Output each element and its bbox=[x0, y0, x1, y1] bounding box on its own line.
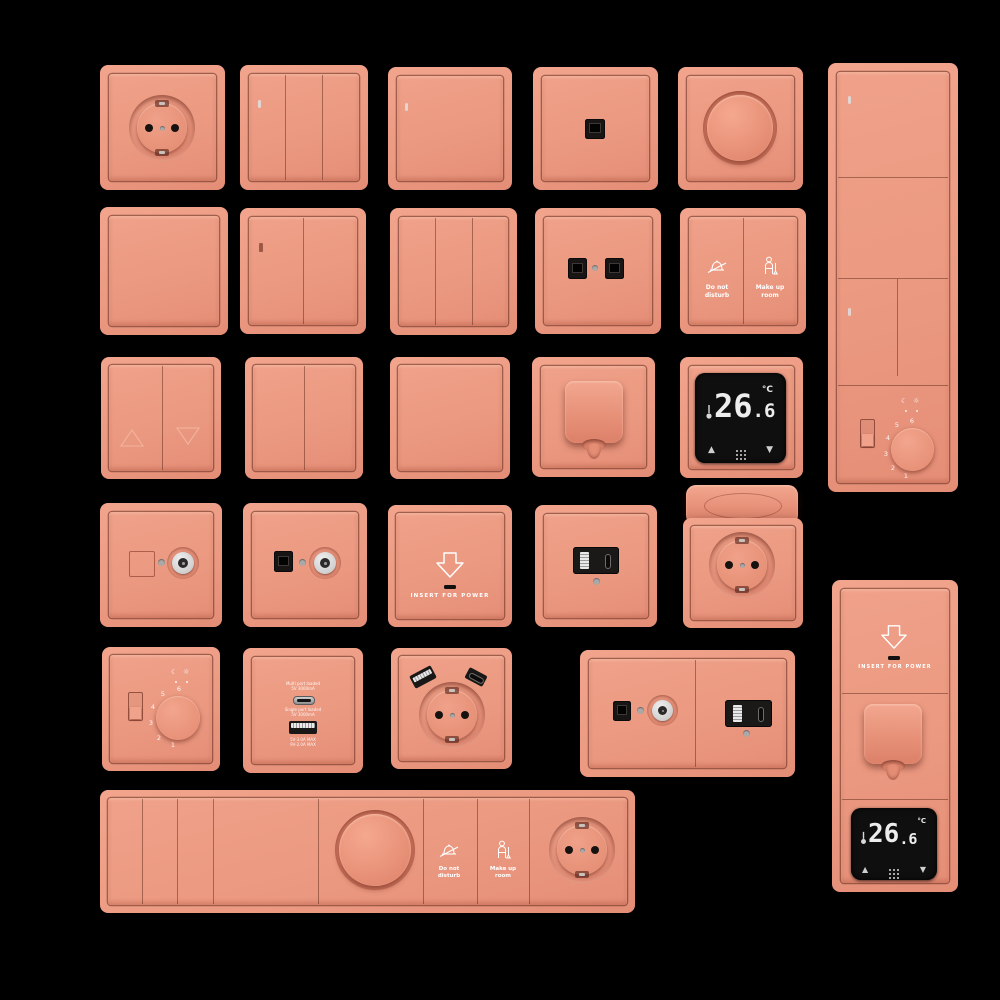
status-dot bbox=[743, 730, 750, 737]
two-gang-switch-plate-2 bbox=[245, 357, 363, 479]
socket-pin-hole-left[interactable] bbox=[145, 124, 153, 132]
earth-clip-top bbox=[575, 822, 589, 829]
led-indicator bbox=[848, 308, 851, 316]
data-tv-outlet-plate bbox=[243, 503, 367, 627]
status-dot bbox=[637, 707, 644, 714]
temp-fraction: .6 bbox=[899, 831, 917, 848]
data-port-left[interactable] bbox=[568, 258, 587, 279]
rocker-area[interactable] bbox=[109, 216, 219, 326]
gang-divider bbox=[162, 366, 163, 470]
usb-c-slot bbox=[297, 699, 311, 702]
temp-up-button[interactable]: ▲ bbox=[708, 445, 715, 455]
dial-number: 5 bbox=[892, 421, 902, 429]
socket-pin-hole-right[interactable] bbox=[171, 124, 179, 132]
clip-metal bbox=[449, 689, 455, 692]
usb-c-port[interactable] bbox=[293, 696, 315, 705]
make-up-room-icon bbox=[759, 255, 781, 278]
outlet-cover-flap[interactable] bbox=[565, 381, 623, 443]
socket-pin-hole-left[interactable] bbox=[565, 846, 573, 854]
dimmer-plate bbox=[678, 67, 803, 190]
clip-metal bbox=[159, 151, 165, 154]
dial-number: 3 bbox=[146, 719, 156, 727]
rocker-area[interactable] bbox=[397, 76, 503, 181]
three-gang-switch-plate bbox=[240, 65, 368, 190]
thermometer-icon bbox=[705, 403, 713, 421]
unit-label: °C bbox=[917, 817, 926, 825]
status-dot bbox=[592, 265, 598, 271]
data-port[interactable] bbox=[613, 701, 631, 721]
blank-module-outline bbox=[129, 551, 155, 577]
usb-charger-text-plate: Multi port loaded 5V 3000mA Single port … bbox=[243, 648, 363, 773]
earth-clip-top bbox=[155, 100, 169, 107]
one-gang-switch-plate bbox=[388, 67, 512, 190]
make-up-room-label: Make up room bbox=[746, 284, 794, 299]
dial-number: 1 bbox=[901, 472, 911, 480]
rocker-area[interactable] bbox=[399, 217, 508, 326]
coax-pin bbox=[324, 562, 327, 565]
module-divider bbox=[695, 660, 696, 767]
temp-down-button[interactable]: ▼ bbox=[766, 445, 773, 455]
coax-pin bbox=[662, 710, 665, 713]
temp-fraction: .6 bbox=[753, 401, 776, 422]
rocker-area[interactable] bbox=[109, 365, 213, 471]
section-divider bbox=[838, 177, 948, 178]
dnd-mur-switch-plate: Do not disturb Make up room bbox=[680, 208, 806, 334]
usb-charger-module bbox=[573, 547, 619, 574]
usb-c-port[interactable] bbox=[605, 554, 611, 569]
moon-icon: ☾ bbox=[901, 397, 907, 405]
clip-metal bbox=[449, 738, 455, 741]
dimmer-knob[interactable] bbox=[339, 814, 411, 886]
schuko-socket-plate bbox=[100, 65, 225, 190]
blinds-switch-plate bbox=[101, 357, 221, 479]
gang-divider bbox=[897, 279, 898, 376]
double-data-outlet-plate bbox=[535, 208, 661, 334]
tall-combo-plate-1: ☾ ☼ 6 5 4 3 2 1 bbox=[828, 63, 958, 492]
analog-thermostat-plate: ☾ ☼ 6 5 4 3 2 1 bbox=[102, 647, 220, 771]
gang-divider bbox=[477, 799, 478, 904]
socket-pin-hole-right[interactable] bbox=[461, 711, 469, 719]
full-rocker-switch-plate bbox=[390, 357, 510, 479]
socket-pin-hole-right[interactable] bbox=[751, 561, 759, 569]
key-card-holder-plate: INSERT FOR POWER bbox=[388, 505, 512, 627]
gang-divider bbox=[303, 218, 304, 324]
section-divider bbox=[842, 693, 948, 694]
tv-outlet-plate bbox=[100, 503, 222, 627]
socket-pin-hole-right[interactable] bbox=[591, 846, 599, 854]
clip-metal bbox=[159, 102, 165, 105]
status-dot bbox=[158, 559, 165, 566]
output-rating-label: 5V-3.0A MAX 9V-2.0A MAX bbox=[268, 737, 338, 747]
double-module-plate bbox=[580, 650, 795, 777]
moon-icon: ☾ bbox=[171, 668, 177, 676]
dimmer-knob[interactable] bbox=[707, 95, 773, 161]
section-divider bbox=[838, 278, 948, 279]
data-port[interactable] bbox=[585, 119, 605, 139]
usb-c-rating-label: Multi port loaded 5V 3000mA bbox=[268, 681, 338, 691]
gang-divider bbox=[472, 218, 473, 325]
temp-integer: 26 bbox=[868, 821, 899, 847]
socket-center-dot bbox=[450, 713, 455, 718]
data-port-opening bbox=[278, 556, 289, 567]
indicator-dot bbox=[175, 681, 177, 683]
earth-clip-top bbox=[445, 687, 459, 694]
thermostat-toggle[interactable] bbox=[128, 692, 143, 721]
data-port-opening bbox=[572, 263, 583, 274]
thermometer-icon bbox=[860, 830, 867, 846]
indicator-dot bbox=[186, 681, 188, 683]
lidded-socket-plate bbox=[683, 518, 803, 628]
toggle-knob[interactable] bbox=[130, 707, 141, 719]
outlet-face bbox=[252, 512, 358, 618]
socket-pin-hole-left[interactable] bbox=[435, 711, 443, 719]
socket-center-dot bbox=[580, 848, 585, 853]
indicator-dot bbox=[905, 410, 907, 412]
gang-divider bbox=[304, 366, 305, 470]
usb-a-port[interactable] bbox=[733, 705, 742, 722]
section-divider bbox=[838, 385, 948, 386]
earth-clip-bottom bbox=[445, 736, 459, 743]
two-gang-switch-plate bbox=[240, 208, 366, 334]
coax-pin bbox=[182, 562, 185, 565]
socket-center-dot bbox=[740, 563, 745, 568]
temp-down-button[interactable]: ▼ bbox=[920, 865, 926, 874]
do-not-disturb-bell-icon bbox=[706, 256, 728, 278]
earth-clip-bottom bbox=[735, 586, 749, 593]
gang-divider bbox=[743, 218, 744, 324]
socket-pin-hole-left[interactable] bbox=[725, 561, 733, 569]
dial-number: 2 bbox=[888, 464, 898, 472]
temperature-readout: 26 .6 bbox=[714, 390, 775, 422]
make-up-room-icon bbox=[492, 839, 514, 862]
three-gang-switch-plate-2 bbox=[390, 208, 517, 335]
blinds-up-icon bbox=[119, 427, 145, 449]
led-window bbox=[259, 243, 263, 252]
tall-combo-plate-2: INSERT FOR POWER °C 26 .6 ▲ ▼ bbox=[832, 580, 958, 892]
clip-metal bbox=[739, 539, 745, 542]
toggle-knob[interactable] bbox=[862, 434, 873, 446]
sun-icon: ☼ bbox=[183, 668, 189, 676]
dial-number: 6 bbox=[907, 417, 917, 425]
dial-number: 4 bbox=[883, 434, 893, 442]
gang-divider bbox=[213, 799, 214, 904]
indicator-dot bbox=[916, 410, 918, 412]
data-port-right[interactable] bbox=[605, 258, 624, 279]
data-port-opening bbox=[617, 705, 627, 715]
one-gang-blank-switch-plate bbox=[100, 207, 228, 335]
thermostat-screen[interactable]: °C 26 .6 ▲ ▼ bbox=[695, 373, 786, 463]
wide-combo-plate: Do not disturb Make up room bbox=[100, 790, 635, 913]
usb-a-tongue bbox=[291, 723, 315, 728]
gang-divider bbox=[177, 799, 178, 904]
section-divider bbox=[842, 799, 948, 800]
outlet-face bbox=[544, 217, 652, 325]
dial-number: 2 bbox=[154, 734, 164, 742]
gang-divider bbox=[322, 75, 323, 180]
menu-dots-icon[interactable] bbox=[736, 450, 738, 452]
single-data-outlet-plate bbox=[533, 67, 658, 190]
rocker-area[interactable] bbox=[398, 365, 502, 471]
dial-number: 5 bbox=[158, 690, 168, 698]
rocker-area[interactable] bbox=[253, 365, 355, 471]
section-divider bbox=[529, 799, 530, 904]
earth-clip-bottom bbox=[155, 149, 169, 156]
insert-for-power-label: INSERT FOR POWER bbox=[395, 593, 505, 599]
usb-charger-module bbox=[725, 700, 772, 727]
temp-integer: 26 bbox=[714, 390, 753, 422]
socket-with-usb-plate bbox=[391, 648, 512, 769]
temp-up-button[interactable]: ▲ bbox=[862, 865, 868, 874]
led-indicator bbox=[405, 103, 408, 111]
earth-clip-top bbox=[735, 537, 749, 544]
status-dot bbox=[593, 578, 600, 585]
thermostat-screen[interactable]: °C 26 .6 ▲ ▼ bbox=[851, 808, 937, 880]
digital-thermostat-plate: °C 26 .6 ▲ ▼ bbox=[680, 357, 803, 478]
gang-divider bbox=[435, 218, 436, 325]
covered-outlet-plate bbox=[532, 357, 655, 477]
section-divider bbox=[423, 799, 424, 904]
usb-c-port[interactable] bbox=[758, 707, 764, 722]
clip-metal bbox=[579, 824, 585, 827]
usb-a-rating-label: Single port loaded 5V 3000mA bbox=[268, 707, 338, 717]
dial-number: 4 bbox=[148, 703, 158, 711]
rocker-area[interactable] bbox=[249, 74, 359, 181]
led-indicator bbox=[258, 100, 261, 108]
blinds-down-icon bbox=[175, 425, 201, 447]
dial-number: 6 bbox=[174, 685, 184, 693]
clip-metal bbox=[739, 588, 745, 591]
gang-divider bbox=[142, 799, 143, 904]
lid-gasket bbox=[704, 493, 782, 519]
data-port-opening bbox=[589, 123, 600, 133]
dial-number: 3 bbox=[881, 450, 891, 458]
clip-metal bbox=[579, 873, 585, 876]
data-port[interactable] bbox=[274, 551, 293, 572]
led-indicator bbox=[848, 96, 851, 104]
menu-dots-icon[interactable] bbox=[889, 869, 891, 871]
outlet-cover-flap[interactable] bbox=[864, 704, 922, 764]
make-up-room-label: Make up room bbox=[479, 866, 527, 880]
card-slot[interactable] bbox=[888, 656, 900, 660]
earth-clip-bottom bbox=[575, 871, 589, 878]
do-not-disturb-label: Do not disturb bbox=[425, 866, 473, 880]
status-dot bbox=[299, 559, 306, 566]
insert-for-power-label: INSERT FOR POWER bbox=[840, 664, 950, 670]
temperature-readout: 26 .6 bbox=[868, 821, 917, 847]
section-divider bbox=[318, 799, 319, 904]
gang-divider bbox=[285, 75, 286, 180]
sun-icon: ☼ bbox=[913, 397, 919, 405]
rocker-area[interactable] bbox=[249, 217, 357, 325]
socket-center-dot bbox=[160, 126, 165, 131]
insert-arrow-icon bbox=[434, 551, 466, 579]
do-not-disturb-bell-icon bbox=[438, 840, 460, 862]
insert-arrow-icon bbox=[879, 624, 909, 650]
usb-module-plate bbox=[535, 505, 657, 627]
thermostat-toggle[interactable] bbox=[860, 419, 875, 448]
card-slot[interactable] bbox=[444, 585, 456, 589]
usb-a-port[interactable] bbox=[580, 552, 589, 569]
data-port-opening bbox=[609, 263, 620, 274]
dial-number: 1 bbox=[168, 741, 178, 749]
do-not-disturb-label: Do not disturb bbox=[693, 284, 741, 299]
usb-a-port[interactable] bbox=[289, 721, 317, 734]
product-collage-canvas: ☾ ☼ 6 5 4 3 2 1 bbox=[0, 0, 1000, 1000]
